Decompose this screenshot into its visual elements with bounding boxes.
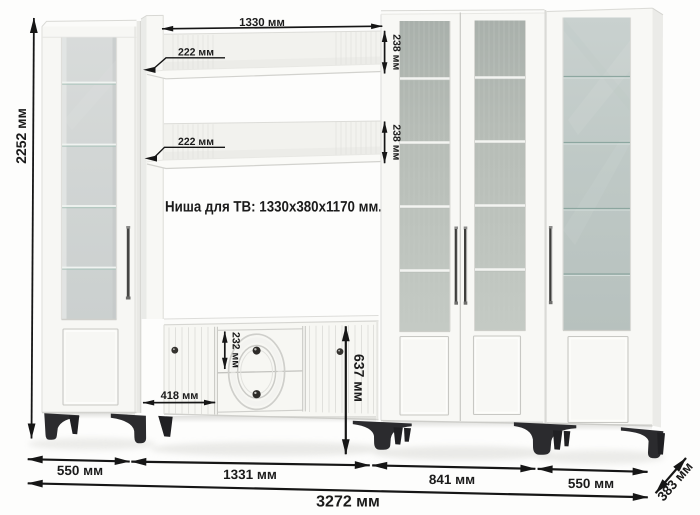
svg-text:222 мм: 222 мм (178, 136, 214, 148)
svg-text:1330 мм: 1330 мм (239, 17, 285, 29)
svg-text:222 мм: 222 мм (178, 46, 214, 58)
svg-text:550 мм: 550 мм (57, 463, 103, 478)
svg-text:550 мм: 550 мм (568, 476, 614, 491)
svg-text:1331 мм: 1331 мм (223, 467, 277, 482)
svg-text:418 мм: 418 мм (161, 390, 199, 402)
svg-text:Ниша для ТВ: 1330х380х1170 мм.: Ниша для ТВ: 1330х380х1170 мм. (165, 199, 382, 216)
svg-text:3272 мм: 3272 мм (316, 494, 380, 511)
svg-text:841 мм: 841 мм (429, 472, 475, 487)
